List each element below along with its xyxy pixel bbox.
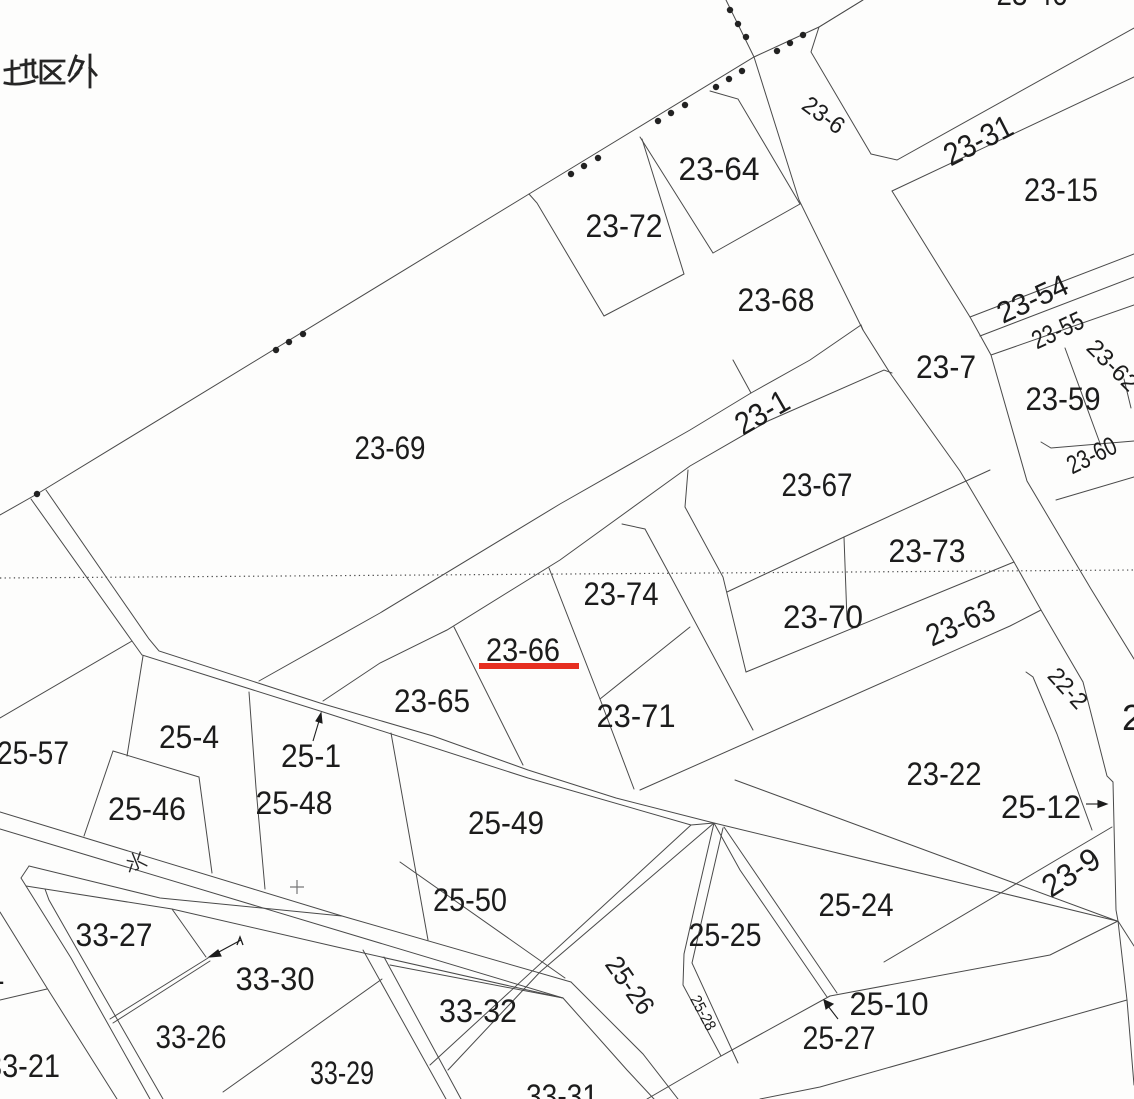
svg-text:23-65: 23-65 [394, 683, 470, 719]
svg-text:23: 23 [1122, 697, 1134, 738]
svg-text:25-12: 25-12 [1001, 789, 1081, 825]
svg-text:25-48: 25-48 [256, 785, 333, 821]
svg-text:25-25: 25-25 [689, 917, 762, 953]
svg-text:25-4: 25-4 [159, 719, 219, 755]
svg-text:23-46: 23-46 [997, 0, 1068, 12]
svg-text:25-10: 25-10 [850, 986, 929, 1022]
svg-text:23-7: 23-7 [916, 349, 976, 385]
svg-text:23-72: 23-72 [586, 208, 663, 244]
svg-text:25-24: 25-24 [819, 887, 894, 923]
svg-text:25-49: 25-49 [468, 805, 544, 841]
svg-text:33-31: 33-31 [526, 1078, 598, 1099]
svg-text:25-46: 25-46 [108, 791, 186, 827]
svg-text:1: 1 [0, 955, 5, 991]
svg-text:23-22: 23-22 [907, 756, 982, 792]
svg-text:23-67: 23-67 [782, 467, 853, 503]
svg-text:33-21: 33-21 [0, 1048, 60, 1084]
svg-text:23-66: 23-66 [486, 632, 560, 668]
svg-text:23-68: 23-68 [738, 282, 815, 318]
svg-text:25-50: 25-50 [433, 882, 507, 918]
svg-text:23-71: 23-71 [597, 698, 676, 734]
svg-text:33-27: 33-27 [76, 917, 153, 953]
svg-text:23-59: 23-59 [1026, 381, 1101, 417]
svg-text:25-1: 25-1 [281, 738, 341, 774]
svg-text:23-74: 23-74 [584, 576, 659, 612]
svg-text:23-73: 23-73 [889, 533, 966, 569]
svg-text:23-15: 23-15 [1024, 172, 1098, 208]
svg-text:33-30: 33-30 [236, 961, 315, 997]
svg-text:25-57: 25-57 [0, 735, 69, 771]
svg-text:23-69: 23-69 [355, 430, 426, 466]
svg-text:23-70: 23-70 [783, 599, 863, 635]
svg-text:33-32: 33-32 [439, 993, 517, 1029]
svg-text:23-64: 23-64 [679, 151, 760, 187]
svg-text:33-29: 33-29 [310, 1055, 374, 1091]
svg-text:25-27: 25-27 [803, 1020, 876, 1056]
svg-text:33-26: 33-26 [156, 1019, 227, 1055]
